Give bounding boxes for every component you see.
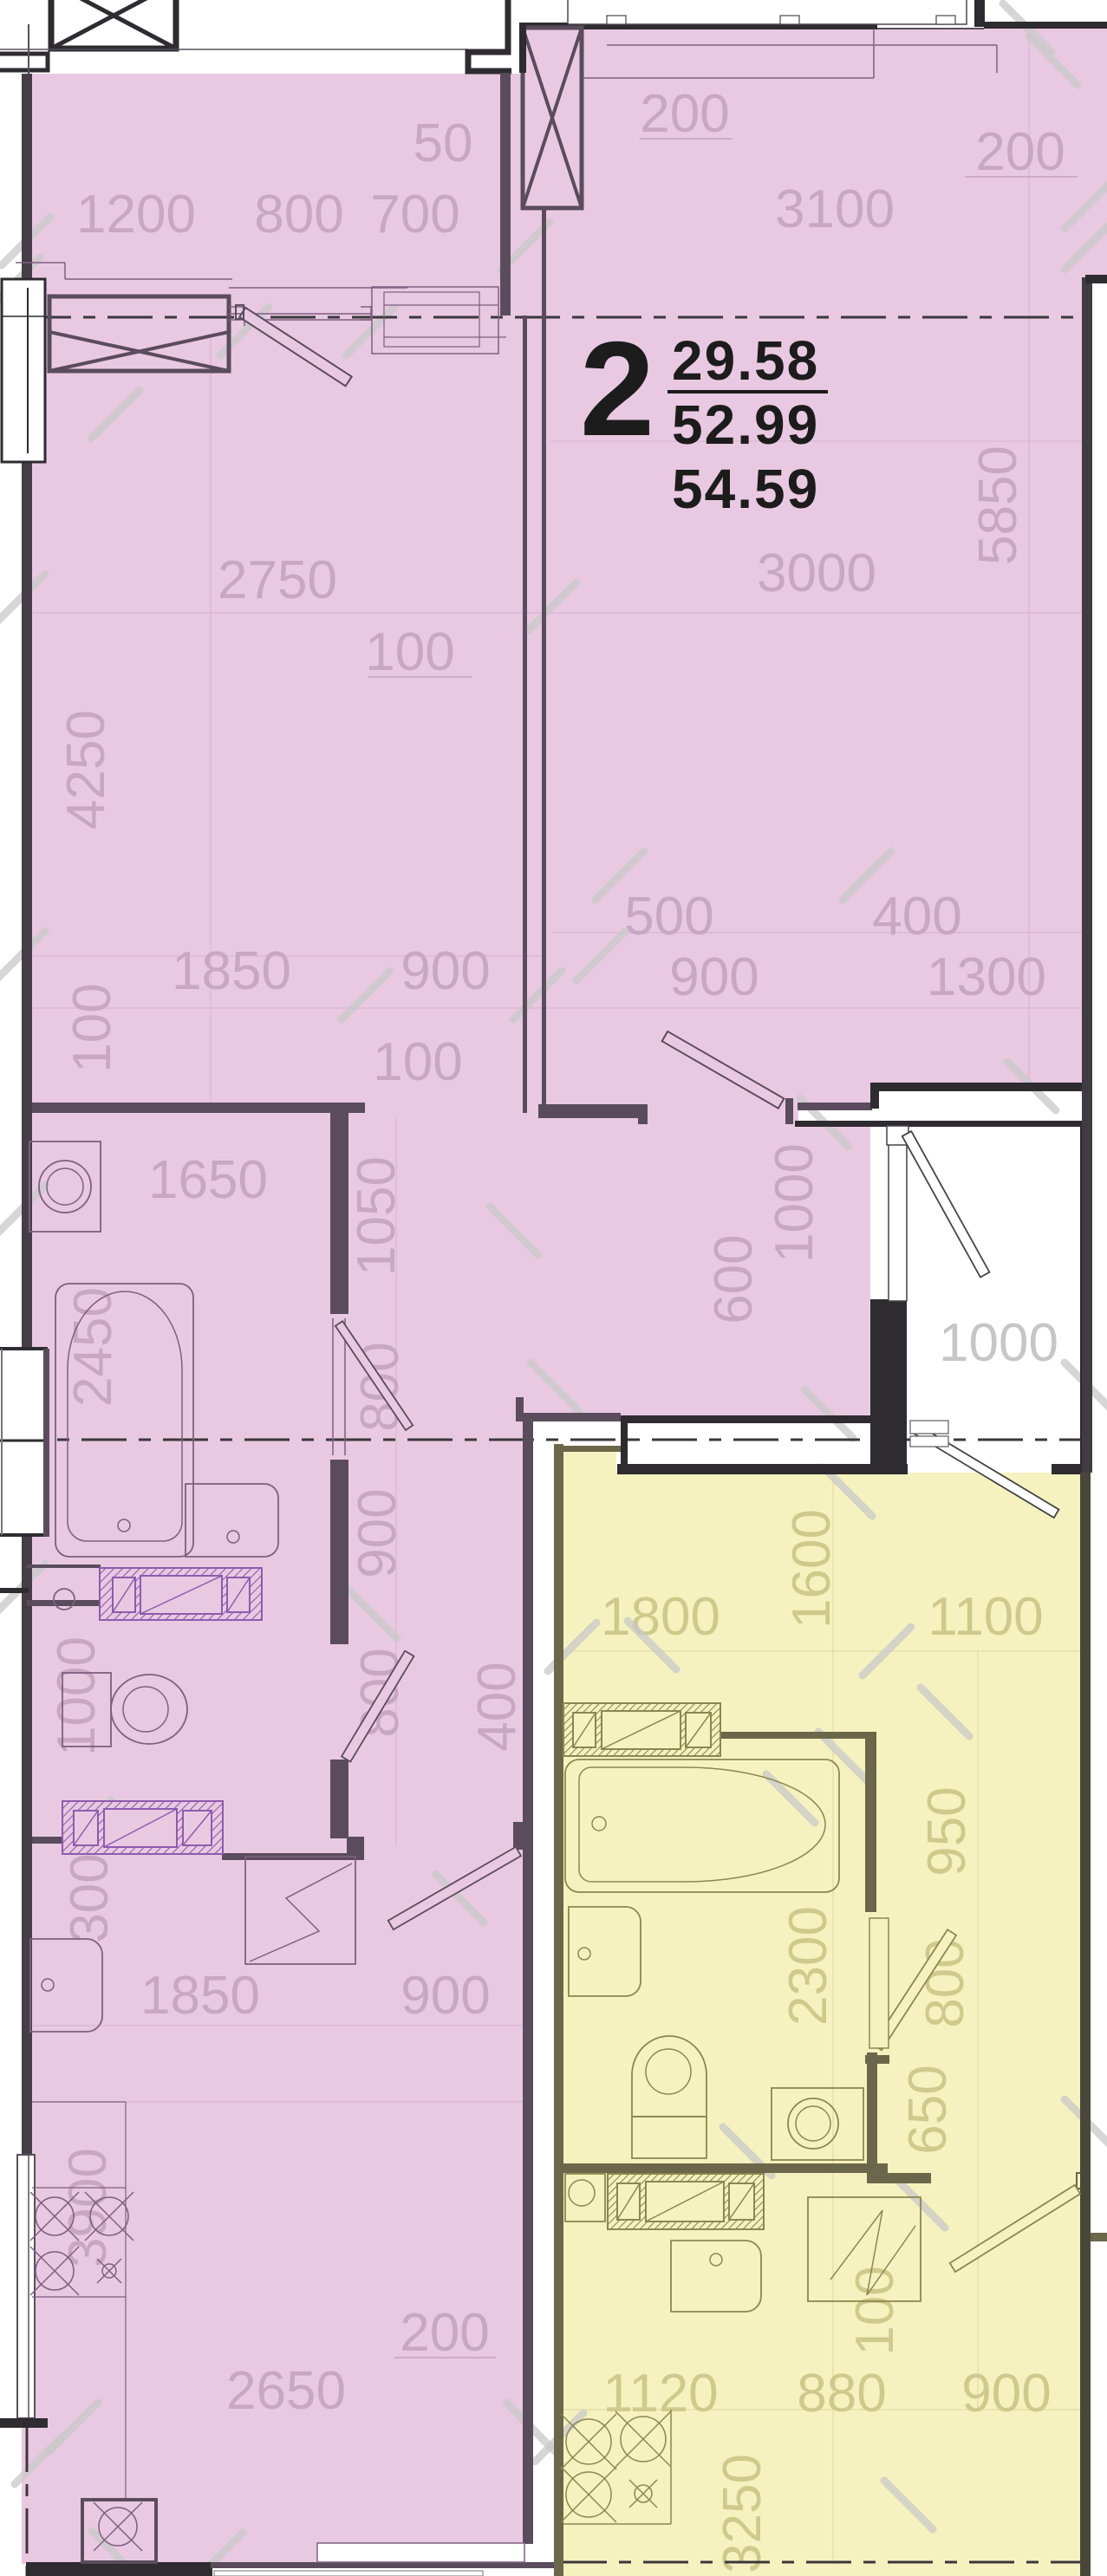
svg-text:1000: 1000 <box>47 1636 107 1756</box>
svg-text:1600: 1600 <box>782 1509 842 1629</box>
svg-text:100: 100 <box>365 622 454 682</box>
svg-text:100: 100 <box>845 2266 905 2355</box>
svg-text:900: 900 <box>669 947 759 1007</box>
svg-text:900: 900 <box>400 1966 490 2026</box>
svg-text:3900: 3900 <box>58 2148 118 2267</box>
svg-text:1850: 1850 <box>140 1966 260 2026</box>
svg-text:50: 50 <box>413 114 473 173</box>
svg-text:200: 200 <box>975 122 1065 182</box>
svg-text:100: 100 <box>62 983 122 1072</box>
svg-text:2750: 2750 <box>218 550 337 610</box>
svg-text:650: 650 <box>898 2065 958 2154</box>
svg-text:3000: 3000 <box>757 543 876 603</box>
svg-text:400: 400 <box>467 1662 527 1751</box>
svg-text:1300: 1300 <box>927 947 1046 1007</box>
svg-text:1000: 1000 <box>939 1313 1058 1373</box>
svg-text:200: 200 <box>400 2303 489 2363</box>
svg-text:4250: 4250 <box>56 710 116 829</box>
svg-text:600: 600 <box>704 1234 764 1324</box>
svg-text:52.99: 52.99 <box>672 394 819 456</box>
svg-text:3100: 3100 <box>775 179 895 239</box>
svg-text:200: 200 <box>640 84 729 144</box>
svg-text:2650: 2650 <box>226 2361 346 2421</box>
svg-text:3250: 3250 <box>713 2454 772 2573</box>
svg-text:5850: 5850 <box>968 446 1028 565</box>
svg-text:1120: 1120 <box>602 2364 718 2423</box>
svg-text:300: 300 <box>60 1853 120 1942</box>
svg-text:54.59: 54.59 <box>672 458 819 520</box>
svg-text:700: 700 <box>370 185 459 244</box>
svg-text:1800: 1800 <box>601 1587 720 1647</box>
svg-text:800: 800 <box>254 185 343 244</box>
svg-text:1200: 1200 <box>76 185 196 244</box>
svg-text:500: 500 <box>624 887 713 946</box>
svg-text:2: 2 <box>580 314 654 464</box>
svg-text:100: 100 <box>373 1032 462 1092</box>
svg-text:1100: 1100 <box>928 1587 1043 1647</box>
svg-text:400: 400 <box>872 887 961 946</box>
svg-text:29.58: 29.58 <box>672 329 819 392</box>
svg-text:1050: 1050 <box>347 1156 407 1276</box>
svg-text:900: 900 <box>400 941 490 1001</box>
svg-text:1000: 1000 <box>765 1143 824 1263</box>
svg-text:1650: 1650 <box>148 1150 268 1210</box>
svg-text:900: 900 <box>348 1488 407 1577</box>
svg-text:950: 950 <box>917 1786 977 1876</box>
svg-text:880: 880 <box>797 2364 886 2423</box>
svg-text:1850: 1850 <box>172 941 291 1001</box>
svg-text:900: 900 <box>961 2364 1051 2423</box>
svg-text:2300: 2300 <box>778 1906 838 2026</box>
